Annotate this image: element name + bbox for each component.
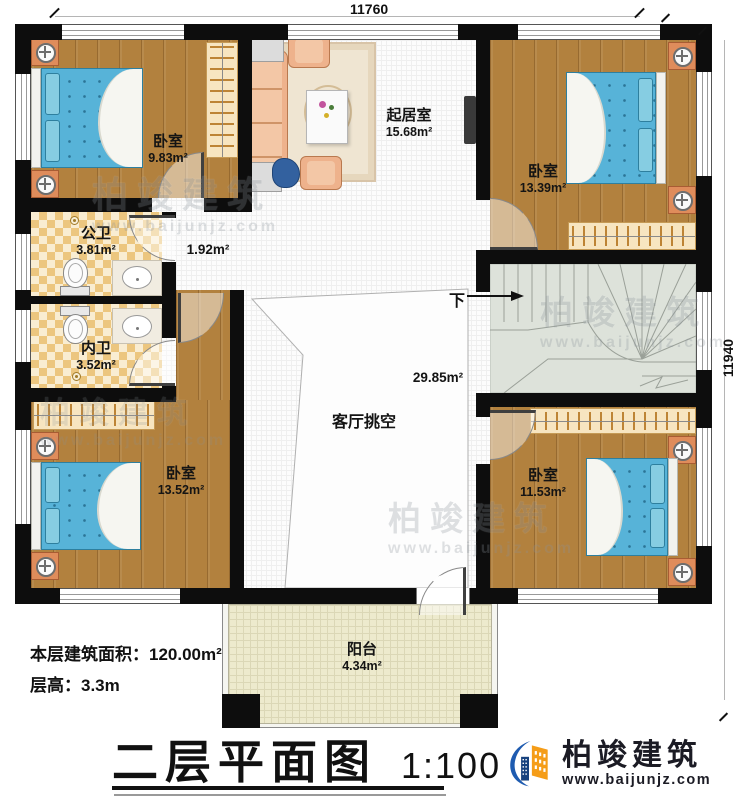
bed-headboard [668, 458, 678, 556]
brand-logo-icon [506, 736, 552, 792]
living-void-outline [246, 284, 472, 590]
nightstand [668, 186, 696, 214]
wall-bedroom-tl-bottom [204, 198, 252, 212]
room-label-bedroom-br: 卧室 11.53m² [520, 468, 566, 499]
wardrobe [33, 400, 155, 430]
staircase [490, 264, 696, 393]
pillow [638, 78, 653, 122]
brand-logo-text: 柏竣建筑 www.baijunjz.com [562, 740, 711, 788]
brand-name: 柏竣建筑 [562, 740, 711, 772]
pillow [45, 508, 60, 544]
window [518, 24, 660, 40]
window [15, 310, 31, 362]
wall-bath-right [162, 262, 176, 338]
nightstand [31, 38, 59, 66]
bed-headboard [31, 462, 41, 550]
wardrobe [530, 408, 696, 434]
plan-title-block: 二层平面图 1:100 [112, 726, 501, 792]
sink [122, 315, 152, 338]
tv [464, 96, 476, 144]
window [15, 430, 31, 524]
bed-sheet [97, 463, 140, 549]
pillow [45, 467, 60, 503]
wall-bedroom-br-left [476, 464, 490, 588]
stairs-down-label: 下 [449, 287, 465, 311]
wall-stairs-bottom [476, 393, 712, 407]
dimension-line-top [55, 16, 640, 17]
plant [272, 158, 300, 188]
stairs-down-arrow [467, 295, 513, 297]
room-label-bedroom-tr: 卧室 13.39m² [520, 164, 567, 195]
room-label-void-area: 29.85m² [413, 370, 463, 385]
floor-drain [72, 372, 81, 381]
title-underline [112, 786, 444, 790]
window [696, 72, 712, 176]
toilet [63, 258, 88, 288]
room-label-bedroom-bl: 卧室 13.52m² [158, 466, 205, 497]
stairs-down-arrow-head [511, 291, 524, 301]
window [15, 74, 31, 160]
room-label-bath-public: 公卫 3.81m² [76, 226, 116, 257]
window [15, 234, 31, 290]
plan-scale: 1:100 [401, 745, 501, 787]
pillow [650, 464, 665, 504]
room-label-void: 客厅挑空 [332, 408, 396, 432]
floor-height-text: 层高：3.3m [30, 671, 222, 702]
dimension-tick [719, 712, 728, 721]
room-label-living: 起居室 15.68m² [386, 108, 433, 139]
bed-sheet [98, 69, 142, 167]
nightstand [31, 432, 59, 460]
pillow [45, 73, 60, 115]
window [288, 24, 458, 40]
nightstand [668, 558, 696, 586]
column [222, 694, 260, 728]
armchair [300, 156, 342, 190]
pillow [638, 128, 653, 172]
pillow [45, 120, 60, 162]
room-label-hall: 1.92m² [187, 242, 230, 257]
nightstand [31, 170, 59, 198]
nightstand [668, 42, 696, 70]
floor-plan-canvas: 11760 11940 [0, 0, 750, 804]
bed-headboard [656, 72, 666, 184]
wall-bedroom-br-left [476, 407, 490, 417]
floor-area-text: 本层建筑面积：120.00m² [30, 640, 222, 671]
bed-headboard [31, 68, 41, 168]
window [696, 428, 712, 546]
plan-title: 二层平面图 [112, 726, 377, 792]
dimension-right: 11940 [720, 330, 736, 386]
wall-bedroom-tr-left [476, 40, 490, 200]
room-label-bedroom-tl: 卧室 9.83m² [148, 134, 188, 165]
dimension-top: 11760 [350, 1, 388, 17]
wall-bedroom-tl-bottom [31, 198, 152, 212]
brand-logo: 柏竣建筑 www.baijunjz.com [506, 736, 711, 792]
brand-url: www.baijunjz.com [562, 772, 711, 788]
bed-sheet [567, 73, 606, 183]
window [518, 588, 658, 604]
column [460, 694, 498, 728]
wardrobe [568, 222, 696, 250]
window [696, 292, 712, 370]
wall-bath-divider [31, 296, 162, 304]
wardrobe [206, 42, 238, 158]
window [62, 24, 184, 40]
room-label-balcony: 阳台 4.34m² [342, 642, 382, 673]
floor-drain [70, 216, 79, 225]
coffee-table [306, 90, 348, 144]
window [60, 588, 180, 604]
pillow [650, 508, 665, 548]
wall-stairs-top [476, 250, 712, 264]
wall-stub [476, 264, 490, 292]
room-label-bath-private: 内卫 3.52m² [76, 341, 116, 372]
nightstand [31, 552, 59, 580]
title-underline-thin [114, 794, 446, 796]
wall-bedroom-tl-right [238, 40, 252, 198]
dimension-tick [661, 13, 670, 22]
wall-bedroom-bl-right [230, 290, 244, 588]
plan-info: 本层建筑面积：120.00m² 层高：3.3m [30, 640, 222, 701]
bed-sheet [587, 459, 623, 555]
sink [122, 266, 152, 289]
wall-bath-bottom [31, 388, 176, 402]
